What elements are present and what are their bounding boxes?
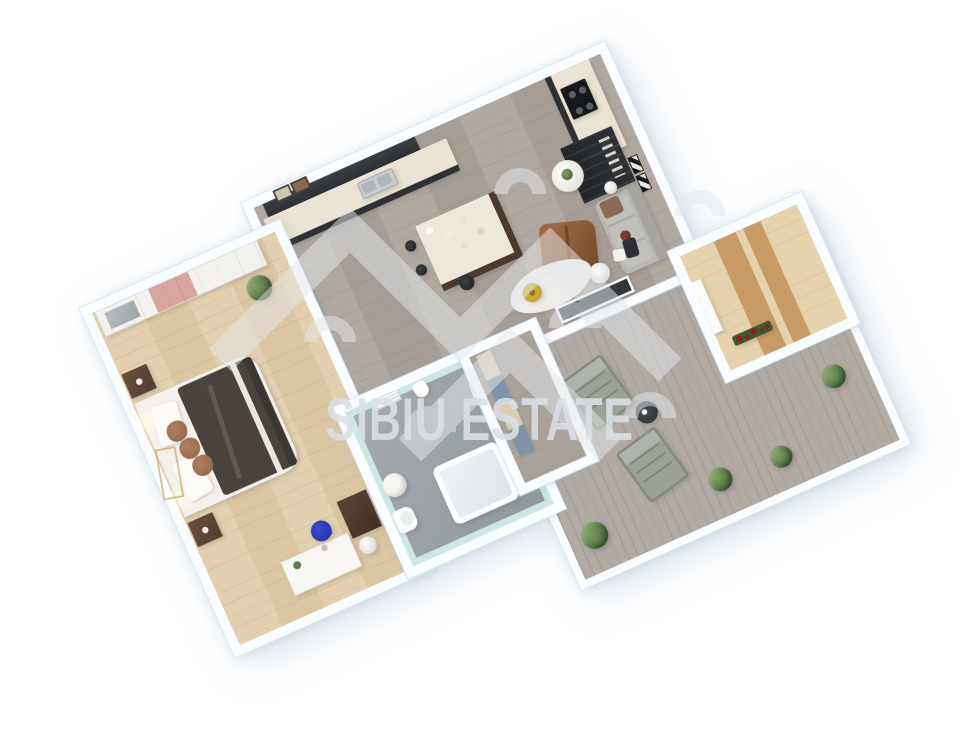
desk-items	[292, 560, 303, 571]
red-flower-box	[731, 320, 773, 346]
white-chair	[356, 534, 379, 557]
sofa	[593, 184, 669, 275]
shrub-plant	[705, 463, 737, 495]
shrub-plant	[766, 442, 796, 472]
balcony-round-table	[632, 397, 662, 427]
wardrobe-pink-doors	[148, 272, 198, 313]
bar-stool	[414, 263, 429, 278]
closet-module-blue	[509, 424, 535, 455]
table-plant	[560, 167, 575, 182]
desk	[280, 532, 362, 596]
floor-plan-render: { "meta": { "kind": "3d-floor-plan-rende…	[0, 0, 959, 720]
shrub-plant	[577, 517, 613, 553]
wardrobe	[94, 240, 267, 337]
bedroom-plant	[243, 271, 277, 305]
apartment-plan	[67, 1, 891, 719]
bar-stool	[403, 239, 418, 254]
balcony-lounger	[615, 426, 690, 503]
wardrobe-mirror-doors	[104, 300, 141, 329]
shrub-plant	[818, 360, 850, 392]
nightstand	[121, 364, 157, 399]
nightstand	[187, 512, 223, 547]
bed	[134, 352, 302, 518]
island-dishes	[425, 226, 435, 236]
sofa-cushion	[598, 195, 624, 220]
person-legs	[612, 248, 626, 262]
